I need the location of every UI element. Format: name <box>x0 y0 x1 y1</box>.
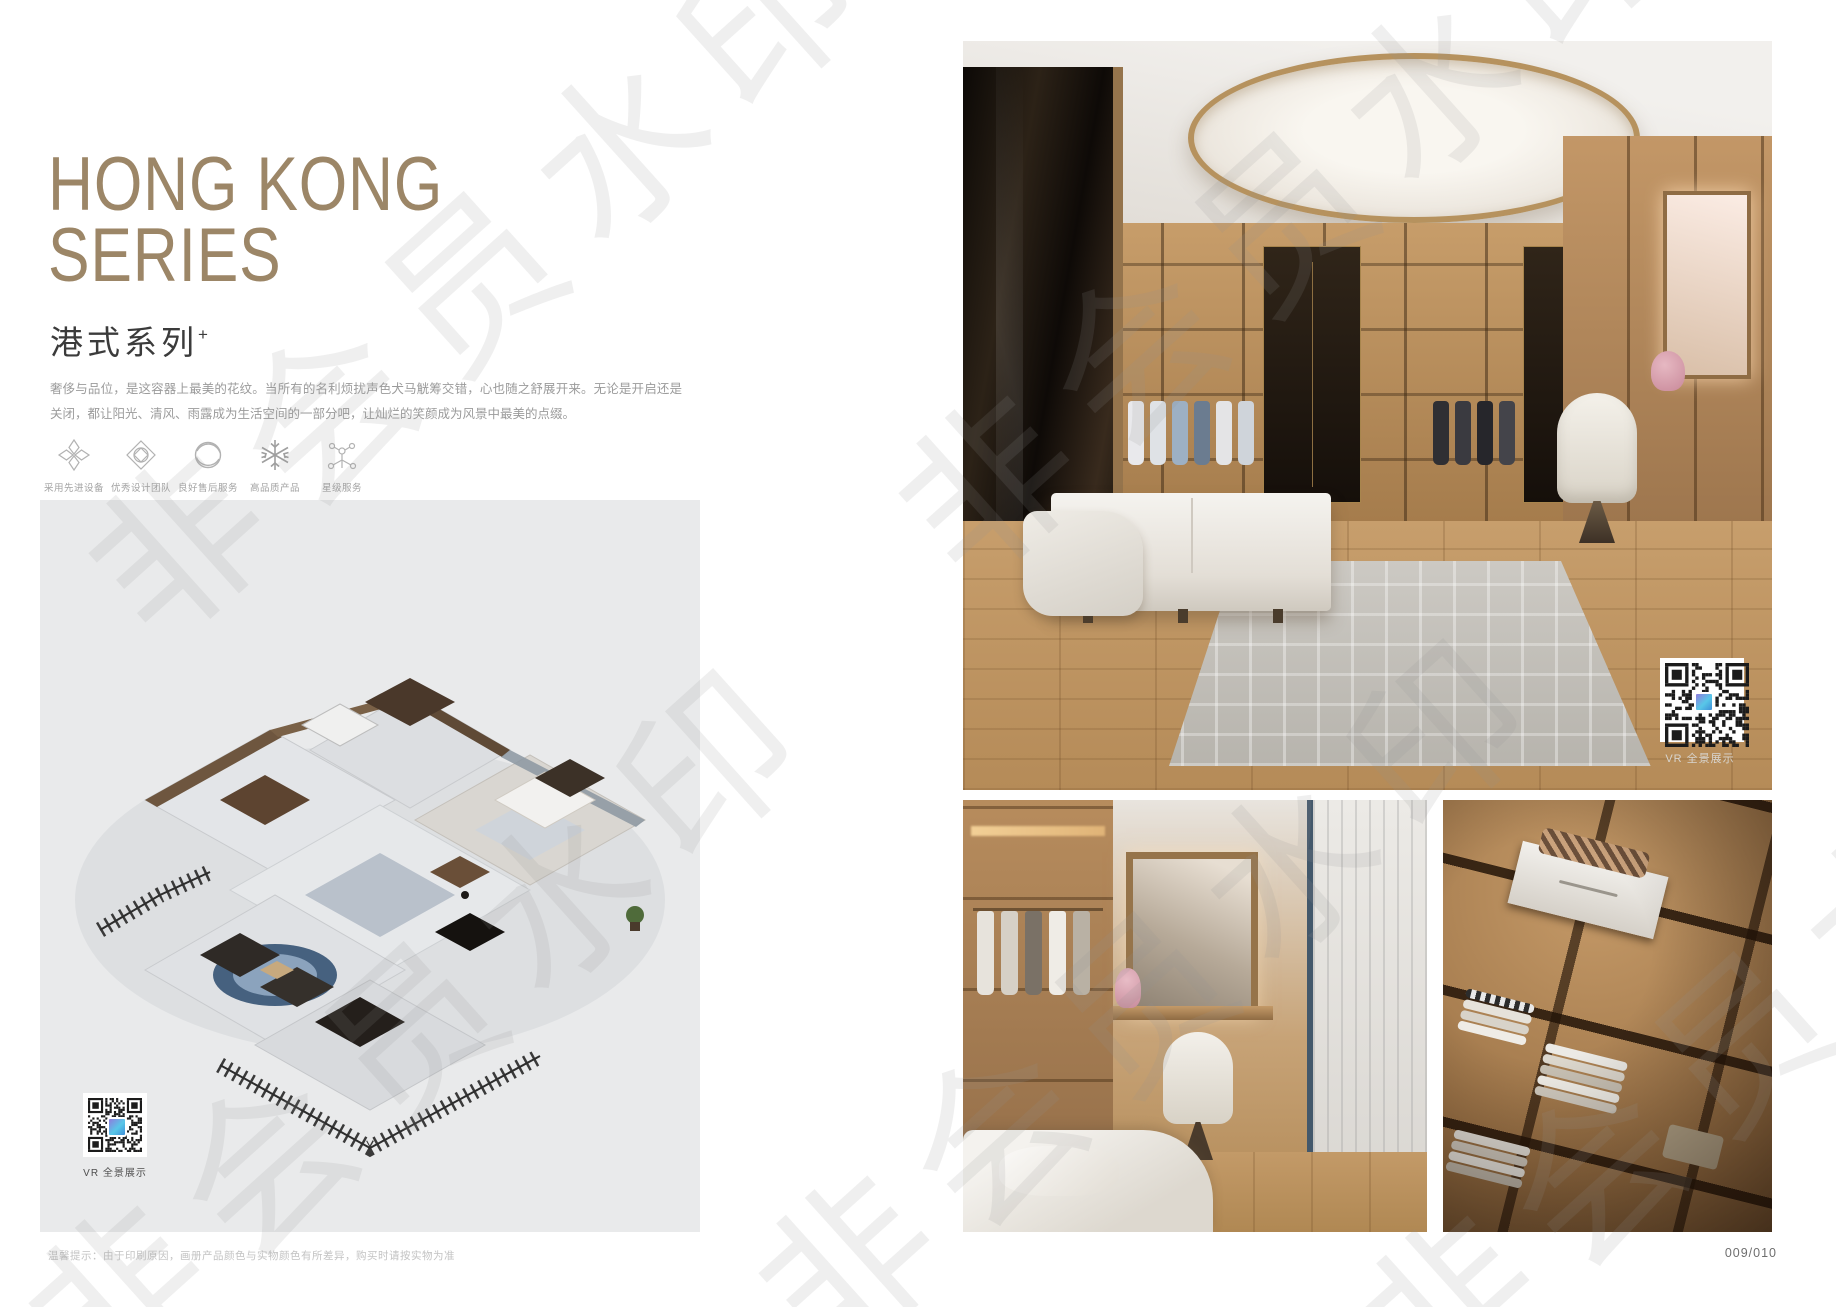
pink-flowers <box>1115 968 1141 1008</box>
series-title-line1: HONG KONG <box>48 150 443 221</box>
feature-label: 优秀设计团队 <box>109 480 173 494</box>
series-title-line2: SERIES <box>48 221 443 292</box>
series-subtitle-text: 港式系列 <box>50 324 198 361</box>
vanity-table <box>1113 1006 1273 1020</box>
vignette-shading <box>1443 800 1772 1232</box>
page-number: 009/010 <box>1725 1246 1777 1260</box>
feature-label: 良好售后服务 <box>176 480 240 494</box>
dark-cabinet <box>1263 246 1361 503</box>
snowflake-icon <box>258 438 292 472</box>
vr-cube-logo-icon <box>107 1117 127 1137</box>
feature-advanced-equipment: 采用先进设备 <box>42 438 106 494</box>
shelf-light <box>971 826 1105 836</box>
ornate-diamond-icon <box>124 438 158 472</box>
feature-design-team: 优秀设计团队 <box>109 438 173 494</box>
swirl-ring-icon <box>191 438 225 472</box>
feature-label: 星级服务 <box>310 480 374 494</box>
draped-blanket <box>1023 511 1143 616</box>
print-disclaimer: 温馨提示：由于印刷原因，画册产品颜色与实物颜色有所差异，购买时请按实物为准 <box>48 1248 455 1263</box>
dressing-area-photo <box>963 800 1427 1232</box>
series-title-block: HONG KONG SERIES <box>48 150 530 291</box>
hanging-clothes <box>1433 401 1515 471</box>
hanging-clothes <box>977 911 1107 1001</box>
vr-cube-logo-icon <box>1694 692 1714 712</box>
chair-leg <box>1579 501 1615 543</box>
pinwheel-flower-icon <box>57 438 91 472</box>
white-bed-corner <box>963 1130 1213 1232</box>
feature-label: 采用先进设备 <box>42 480 106 494</box>
feature-quality-product: 高品质产品 <box>243 438 307 494</box>
chair-back <box>1163 1032 1233 1124</box>
walkin-closet-photo: VR 全景展示 <box>963 41 1772 790</box>
floorplan-vr-label: VR 全景展示 <box>70 1164 160 1179</box>
hanging-clothes <box>1128 401 1254 471</box>
catalog-page: 非会员水印 非会员水印 非会员水印 非会员水印 非会员水印 HONG KONG … <box>0 0 1836 1307</box>
series-subtitle-cn: 港式系列+ <box>50 316 208 364</box>
chair-back <box>1557 393 1637 503</box>
main-vr-qr-code <box>1660 658 1744 742</box>
vanity-mirror <box>1663 191 1751 379</box>
series-description: 奢侈与品位，是这容器上最美的花纹。当所有的名利烦扰声色犬马觥筹交错，心也随之舒展… <box>50 377 682 427</box>
pink-flowers <box>1651 351 1685 391</box>
vanity-mirror <box>1126 852 1258 1018</box>
white-dressing-chair <box>1551 393 1643 543</box>
shelf-closeup-photo <box>1443 800 1772 1232</box>
main-vr-label: VR 全景展示 <box>1650 750 1750 766</box>
floorplan-panel: VR 全景展示 <box>40 500 700 1232</box>
feature-row: 采用先进设备 优秀设计团队 良好售后服务 高品质产品 <box>42 438 374 494</box>
star-burst-icon <box>325 438 359 472</box>
feature-label: 高品质产品 <box>243 480 307 494</box>
floorplan-vr-qr-code <box>83 1093 147 1157</box>
subtitle-plus-mark: + <box>198 325 208 344</box>
feature-after-sales: 良好售后服务 <box>176 438 240 494</box>
feature-star-service: 星级服务 <box>310 438 374 494</box>
